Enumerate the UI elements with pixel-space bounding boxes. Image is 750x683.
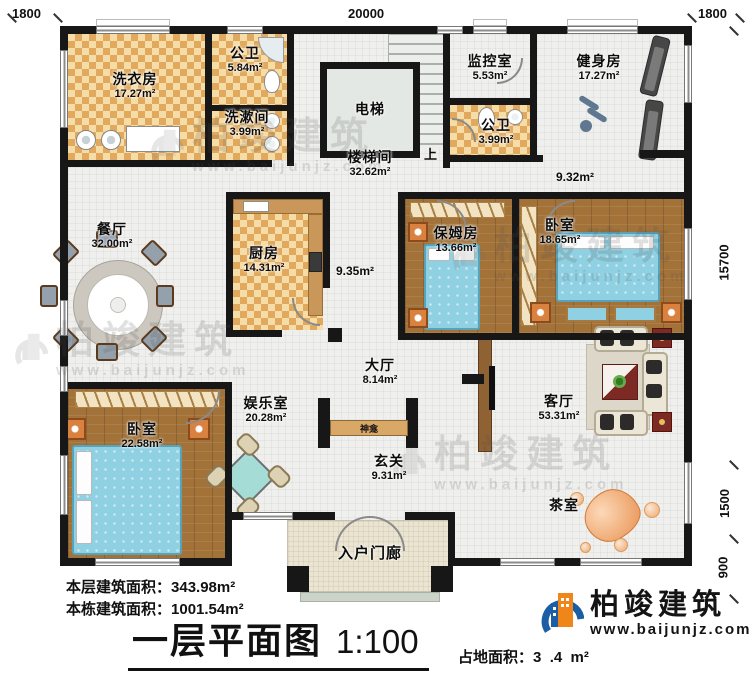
pillow xyxy=(610,236,654,249)
window xyxy=(95,558,180,566)
wall-stub xyxy=(318,398,330,448)
wall xyxy=(443,26,450,168)
room-label-bedroom-left: 卧室22.58m² xyxy=(98,422,186,450)
dim-top-right: 1800 xyxy=(698,6,727,21)
brand-logo-icon xyxy=(540,589,584,639)
room-label-living: 客厅53.31m² xyxy=(518,394,600,422)
dim-tick xyxy=(53,13,63,23)
window xyxy=(227,26,263,34)
brand-text: 柏竣建筑 www.baijunjz.com xyxy=(590,590,750,639)
porch-pillar xyxy=(431,566,453,592)
sofa-cushion xyxy=(620,414,634,430)
bed-bench-cushion xyxy=(566,306,608,322)
room-label-bedroom-right: 卧室18.65m² xyxy=(518,218,602,246)
dim-top-left: 1800 xyxy=(12,6,41,21)
wall xyxy=(226,330,282,337)
room-label-monitor: 监控室5.53m² xyxy=(452,54,528,82)
dim-right-mid: 1500 xyxy=(717,489,732,518)
window xyxy=(96,26,170,34)
wall xyxy=(443,155,543,162)
porch-pillar xyxy=(287,566,309,592)
wall-stub xyxy=(328,328,342,342)
room-label-kitchen: 厨房14.31m² xyxy=(224,246,304,274)
kitchen-sink xyxy=(243,201,269,212)
brand-site: www.baijunjz.com xyxy=(590,621,750,638)
room-label-bath2: 公卫3.99m² xyxy=(458,118,534,146)
dim-right-small: 900 xyxy=(715,557,730,579)
window xyxy=(473,26,507,34)
porch-step xyxy=(300,592,440,602)
sofa-cushion xyxy=(600,414,614,430)
sink xyxy=(264,136,280,152)
dumbbell-plate xyxy=(580,120,592,132)
window xyxy=(684,228,692,300)
wall xyxy=(398,192,405,340)
watermark-logo-icon xyxy=(14,328,48,372)
shrine-label: 神龛 xyxy=(360,422,378,435)
window xyxy=(567,26,638,34)
wall xyxy=(60,160,272,167)
washing-machine xyxy=(76,130,96,150)
window xyxy=(243,512,293,520)
stove xyxy=(309,252,322,272)
wall xyxy=(443,98,537,105)
pillow xyxy=(76,500,92,544)
plant xyxy=(613,375,626,388)
room-label-elevator: 电梯 xyxy=(339,102,401,118)
floor-area-line: 本层建筑面积：343.98m² xyxy=(66,576,235,597)
dining-chair xyxy=(40,285,58,307)
corridor-area-label: 9.32m² xyxy=(556,170,594,184)
nightstand xyxy=(530,302,551,323)
dining-table-center xyxy=(110,297,126,313)
washing-machine xyxy=(101,130,121,150)
window xyxy=(60,366,68,392)
dim-tick xyxy=(729,534,739,544)
wall xyxy=(448,512,455,566)
nightstand xyxy=(661,302,682,323)
window xyxy=(500,558,555,566)
wall xyxy=(640,150,692,158)
room-label-hall: 大厅8.14m² xyxy=(338,358,422,386)
room-label-porch: 入户门廊 xyxy=(300,546,440,563)
room-label-washroom: 洗漱间3.99m² xyxy=(206,110,288,138)
wall xyxy=(226,192,330,199)
wall xyxy=(398,192,692,199)
dining-chair xyxy=(96,343,118,361)
room-label-dining: 餐厅32.00m² xyxy=(72,222,152,250)
plan-title: 一层平面图 1:100 xyxy=(128,612,429,671)
window-sill xyxy=(473,19,507,26)
room-label-gym: 健身房17.27m² xyxy=(556,54,642,82)
room-label-bath1: 公卫5.84m² xyxy=(205,46,285,74)
window xyxy=(60,300,68,336)
bed-bench-cushion xyxy=(614,306,656,322)
sofa-cushion xyxy=(646,384,662,398)
side-table xyxy=(652,412,672,432)
site-area-line: 占地面积：3 .4 m² xyxy=(458,646,589,667)
wall xyxy=(512,192,519,340)
window xyxy=(60,50,68,128)
window xyxy=(684,462,692,524)
dim-top-center: 20000 xyxy=(348,6,384,21)
room-label-laundry: 洗衣房17.27m² xyxy=(95,72,175,100)
wall xyxy=(398,333,692,340)
room-label-tea: 茶室 xyxy=(532,498,596,514)
dim-tick xyxy=(687,13,697,23)
room-label-stairhall: 楼梯间32.62m² xyxy=(328,150,412,178)
window-sill xyxy=(96,19,170,26)
dim-tick xyxy=(735,13,745,23)
dim-tick xyxy=(729,26,739,36)
dim-right-main: 15700 xyxy=(717,244,732,280)
sofa-cushion xyxy=(646,360,662,374)
stairs-up-label: 上 xyxy=(424,144,437,163)
laundry-sink-unit xyxy=(126,126,180,152)
tea-stool xyxy=(614,538,628,552)
window xyxy=(60,455,68,515)
window xyxy=(684,45,692,103)
dining-chair xyxy=(156,285,174,307)
room-label-nanny: 保姆房13.66m² xyxy=(412,226,500,254)
room-label-recreation: 娱乐室20.28m² xyxy=(220,396,312,424)
tea-stool xyxy=(644,502,660,518)
tea-stool xyxy=(580,542,591,553)
outside-area xyxy=(232,520,288,566)
floor-plan-canvas: 1800 20000 1800 15700 1500 900 xyxy=(0,0,750,683)
dim-tick xyxy=(729,460,739,470)
wall-stub xyxy=(462,374,484,384)
window-sill xyxy=(567,19,638,26)
tv xyxy=(489,366,495,410)
wall xyxy=(60,382,232,389)
brand-name: 柏竣建筑 xyxy=(590,590,750,622)
room-label-foyer: 玄关9.31m² xyxy=(350,454,428,482)
wall xyxy=(287,26,294,166)
corridor-area-label: 9.35m² xyxy=(336,264,374,278)
window xyxy=(437,26,463,34)
pillow xyxy=(76,451,92,495)
wall xyxy=(323,192,330,288)
wall xyxy=(455,558,692,566)
shrine-shelf: 神龛 xyxy=(330,420,408,436)
brand-logo: 柏竣建筑 www.baijunjz.com xyxy=(540,589,750,639)
window xyxy=(580,558,642,566)
nightstand xyxy=(408,308,428,328)
